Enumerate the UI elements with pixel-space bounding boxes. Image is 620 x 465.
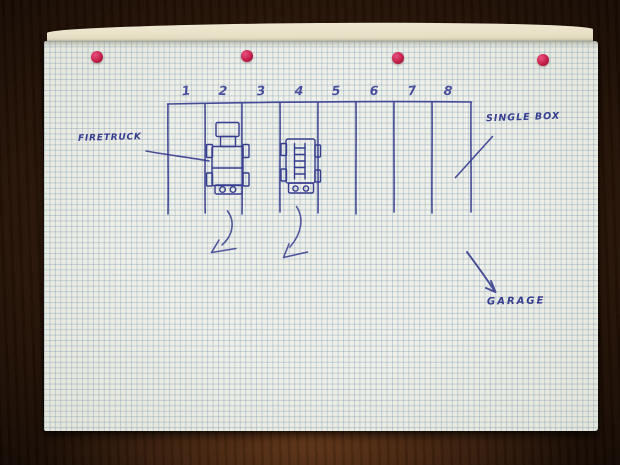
photo-of-hand-drawn-diagram: { "diagram": { "title_context": "hand-dr… (0, 0, 620, 465)
box-number: 7 (404, 82, 419, 98)
garage-label: GARAGE (487, 295, 546, 307)
box-number: 6 (367, 83, 381, 98)
red-pin (392, 52, 404, 64)
red-pin (241, 50, 253, 62)
box-number: 1 (178, 82, 193, 98)
box-number: 3 (253, 82, 268, 98)
red-pin (91, 51, 103, 63)
firetruck-label: FIRETRUCK (78, 132, 142, 144)
box-number: 4 (292, 83, 307, 98)
box-number: 5 (328, 83, 343, 99)
red-pin (537, 54, 549, 66)
box-number: 2 (216, 83, 231, 99)
squared-paper (44, 41, 598, 431)
box-number: 8 (440, 83, 455, 99)
